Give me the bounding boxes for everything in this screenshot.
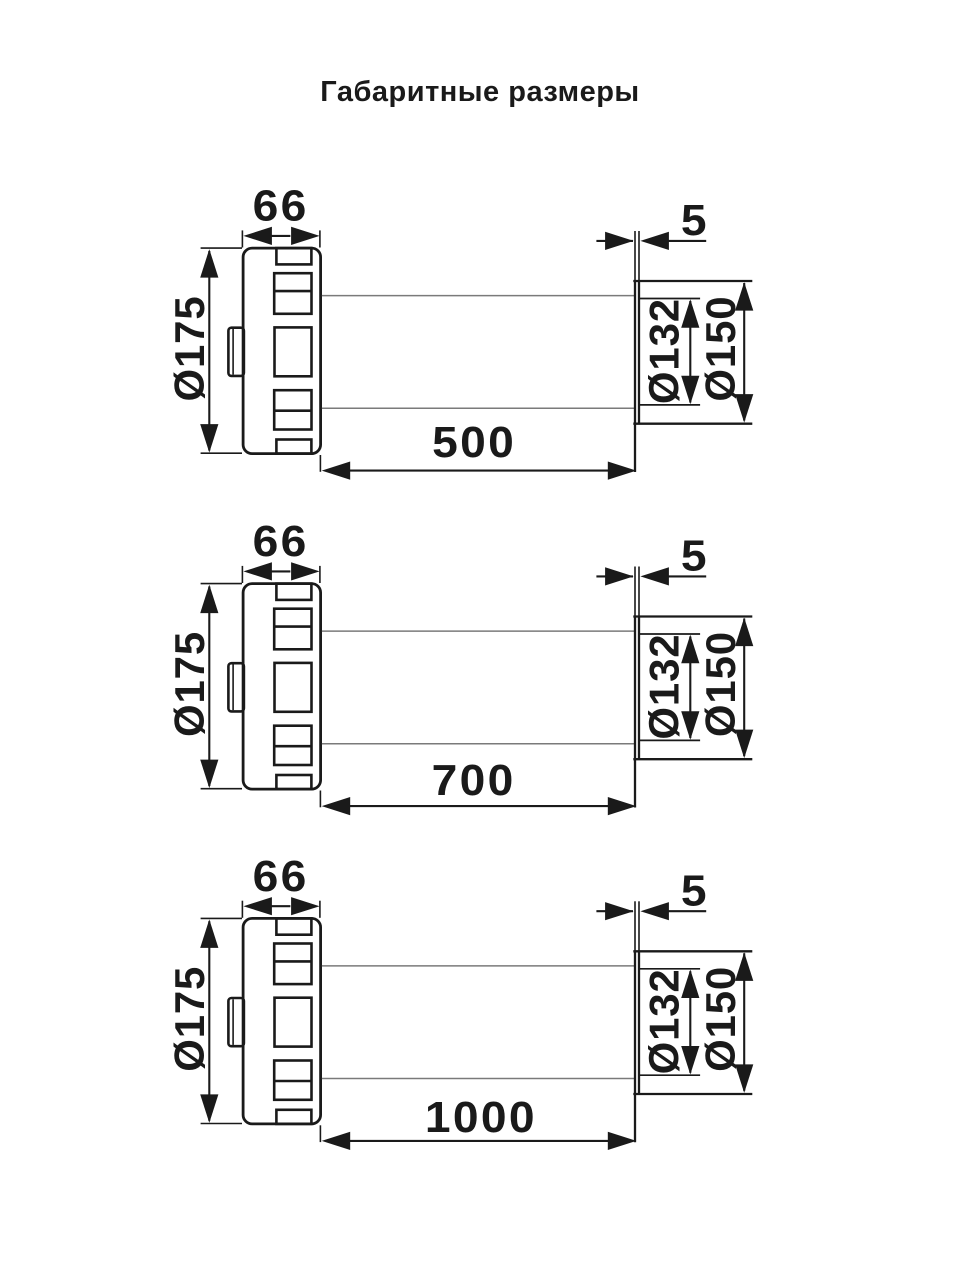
svg-text:Ø175: Ø175	[166, 296, 213, 402]
svg-text:1000: 1000	[425, 1092, 537, 1142]
svg-text:66: 66	[253, 181, 309, 231]
svg-text:500: 500	[432, 417, 516, 467]
svg-text:Ø150: Ø150	[697, 296, 744, 402]
svg-text:5: 5	[681, 195, 709, 245]
svg-text:Габаритные размеры: Габаритные размеры	[320, 76, 639, 108]
svg-text:Ø132: Ø132	[641, 298, 688, 404]
svg-text:700: 700	[432, 755, 516, 805]
